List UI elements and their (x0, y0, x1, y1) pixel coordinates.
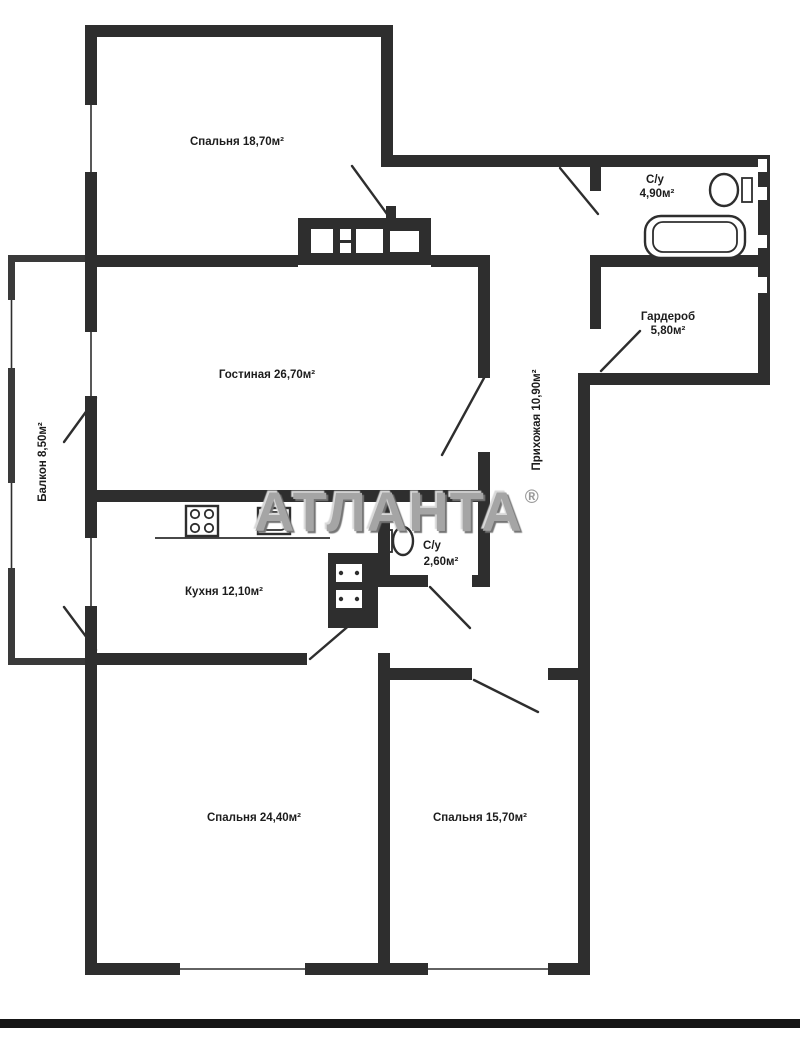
wall-vent-notch (758, 159, 767, 172)
vent-cell (340, 229, 351, 240)
room-label-hallway: Прихожая 10,90м² (531, 369, 543, 470)
room-label-bathroom-main-name: С/у (646, 174, 665, 186)
wall-segment (305, 963, 428, 975)
door-leaf (474, 680, 538, 712)
wall-vent-notch (758, 235, 767, 248)
wall-segment (8, 568, 15, 665)
wall-segment (431, 255, 478, 267)
wall-segment (85, 172, 97, 264)
toilet-icon (710, 174, 738, 206)
toilet-tank (742, 178, 752, 202)
vent-cell (311, 229, 333, 253)
vent-shaft-kitchen (328, 553, 378, 628)
wall-segment (390, 668, 472, 680)
vent-block (386, 206, 396, 218)
room-label-living: Гостиная 26,70м² (219, 369, 315, 381)
wall-segment (85, 963, 180, 975)
wall-segment (85, 396, 97, 538)
wall-segment (381, 25, 393, 162)
room-label-bathroom-small-area: 2,60м² (424, 556, 459, 568)
room-label-bedroom-left: Спальня 24,40м² (207, 812, 301, 824)
wall-segment (548, 963, 590, 975)
wall-segment (85, 264, 97, 332)
wall-segment (590, 167, 601, 191)
room-label-wardrobe-area: 5,80м² (651, 325, 686, 337)
bottom-divider-bar (0, 1019, 800, 1028)
vent-dot (339, 571, 343, 575)
wall-vent-notch (758, 277, 767, 293)
door-leaf (352, 166, 387, 214)
vent-dot (339, 597, 343, 601)
wall-segment (8, 658, 85, 665)
registered-trademark-icon: ® (525, 487, 540, 508)
wall-segment (378, 653, 390, 975)
room-label-bedroom-top: Спальня 18,70м² (190, 136, 284, 148)
wall-segment (381, 155, 601, 167)
door-leaf (601, 331, 640, 371)
vent-cell (340, 243, 351, 253)
door-leaf (442, 378, 484, 455)
stove-icon (186, 506, 218, 536)
vent-dot (355, 597, 359, 601)
room-label-bedroom-right: Спальня 15,70м² (433, 812, 527, 824)
watermark-text: АТЛАНТА (254, 480, 523, 543)
floor-plan: Спальня 18,70м² С/у 4,90м² Гардероб 5,80… (0, 0, 800, 1037)
door-leaf (430, 587, 470, 628)
wall-segment (85, 25, 393, 37)
wall-vent-notch (758, 187, 767, 200)
wall-segment (590, 155, 770, 167)
wall-segment (8, 255, 85, 262)
vent-shaft-top (298, 206, 431, 265)
wall-segment (590, 267, 601, 329)
room-label-wardrobe-name: Гардероб (641, 311, 695, 323)
wall-segment (378, 575, 428, 587)
room-label-bathroom-main-area: 4,90м² (640, 188, 675, 200)
vent-cell (356, 229, 383, 253)
vent-cell (390, 231, 419, 252)
room-label-balcony: Балкон 8,50м² (37, 422, 49, 502)
wall-segment (85, 25, 97, 105)
wall-segment (8, 368, 15, 483)
agency-watermark: АТЛАНТА® (254, 484, 538, 540)
wall-segment (478, 255, 490, 378)
vent-dot (355, 571, 359, 575)
room-label-kitchen: Кухня 12,10м² (185, 586, 263, 598)
wall-segment (8, 255, 15, 300)
wall-segment (548, 668, 590, 680)
wall-segment (85, 653, 307, 665)
wall-segment (85, 255, 298, 267)
wall-segment (578, 373, 770, 385)
